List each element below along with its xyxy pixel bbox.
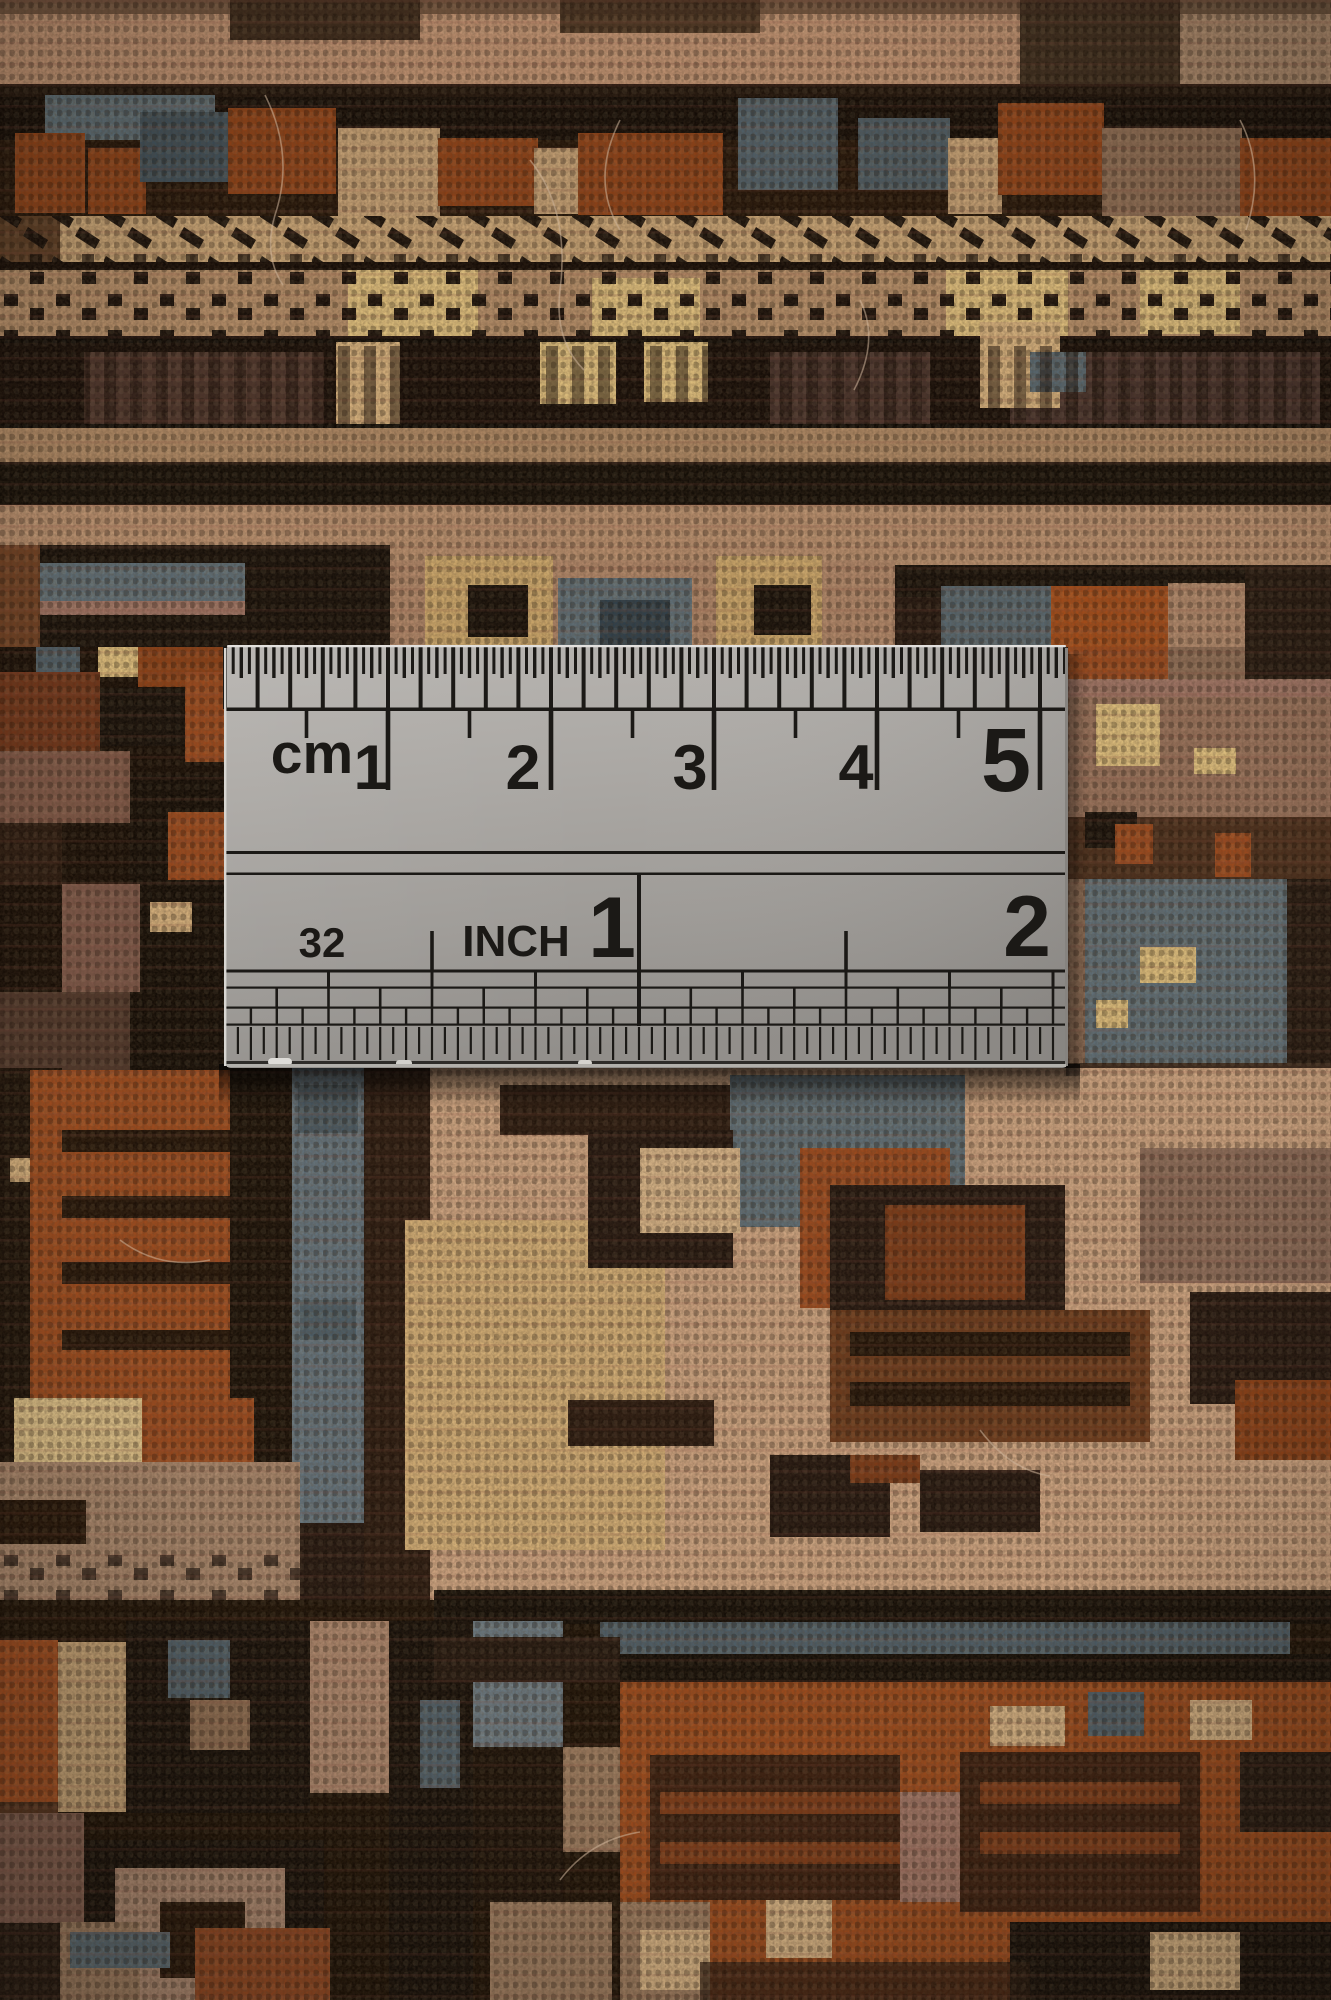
svg-text:cm: cm	[271, 722, 353, 786]
svg-text:1: 1	[353, 733, 388, 803]
svg-text:2: 2	[1003, 879, 1051, 975]
svg-text:4: 4	[838, 733, 873, 803]
svg-text:INCH: INCH	[462, 917, 570, 966]
svg-text:32: 32	[299, 919, 346, 966]
svg-text:5: 5	[981, 711, 1031, 811]
svg-text:2: 2	[505, 733, 540, 803]
svg-text:3: 3	[672, 733, 707, 803]
svg-text:1: 1	[588, 880, 636, 976]
